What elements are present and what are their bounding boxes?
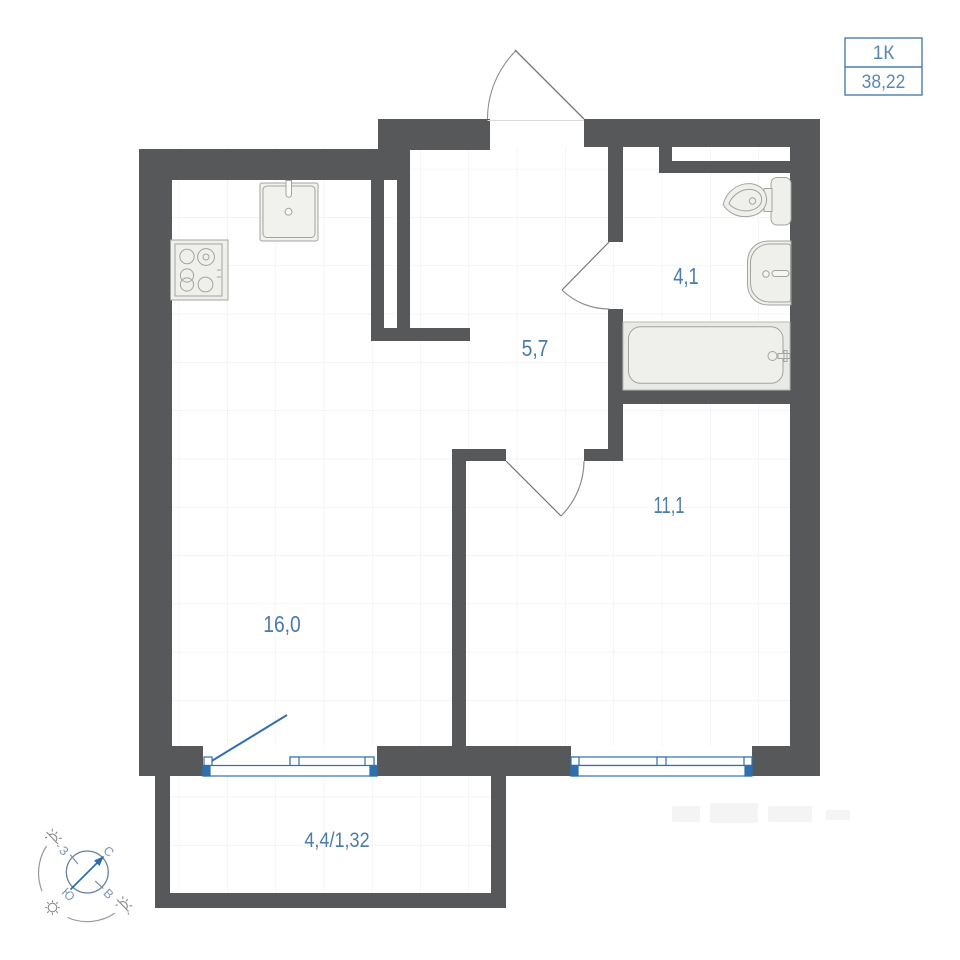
svg-text:4,1: 4,1: [673, 264, 699, 289]
svg-text:11,1: 11,1: [654, 493, 685, 518]
svg-text:4,4/1,32: 4,4/1,32: [304, 829, 369, 853]
svg-text:16,0: 16,0: [263, 613, 301, 638]
svg-text:1К: 1К: [873, 43, 895, 64]
svg-text:38,22: 38,22: [862, 70, 906, 92]
svg-text:5,7: 5,7: [522, 337, 549, 362]
